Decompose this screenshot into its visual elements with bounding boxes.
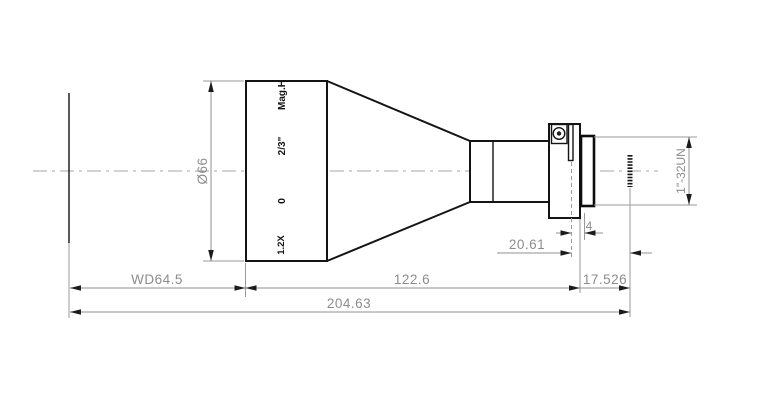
set-screw-socket xyxy=(557,131,561,135)
arrow-thread-top xyxy=(686,137,692,148)
dim-text-front-diameter: Ø66 xyxy=(195,157,210,184)
dim-text-total-length: 204.63 xyxy=(327,296,371,311)
barrel-sensor-format-marking: 2/3" xyxy=(277,136,288,155)
arrow-barrel-left xyxy=(246,285,257,291)
arrow-thread-bottom xyxy=(686,194,692,205)
cone-bottom-edge xyxy=(327,202,470,261)
barrel-focus-index-marking: 0 xyxy=(276,198,288,204)
arrow-rear-left xyxy=(561,250,572,256)
arrow-wd-right xyxy=(235,285,246,291)
dim-text-working-distance: WD64.5 xyxy=(131,272,183,287)
dim-text-rear-section: 20.61 xyxy=(509,237,545,252)
arrow-offset-left xyxy=(561,230,572,236)
rear-tube xyxy=(470,141,549,202)
arrow-total-right xyxy=(619,309,630,315)
drawing-sheet: Ø66 1"-32UN WD64.5 122.6 17.526 204.63 2… xyxy=(0,0,760,415)
barrel-brand-marking: Mag.H xyxy=(277,80,288,110)
dim-text-flange-offset: 4 xyxy=(586,219,593,233)
arrow-diameter-bottom xyxy=(208,250,214,261)
dim-text-barrel-length: 122.6 xyxy=(394,272,430,287)
mount-block xyxy=(549,124,580,218)
dim-text-flange-focal-distance: 17.526 xyxy=(583,272,627,287)
arrow-wd-left xyxy=(70,285,81,291)
lens-technical-drawing: Ø66 1"-32UN WD64.5 122.6 17.526 204.63 2… xyxy=(0,0,760,415)
arrow-diameter-top xyxy=(208,81,214,92)
arrow-total-left xyxy=(70,309,81,315)
arrow-rear-right xyxy=(630,250,641,256)
barrel-magnification-marking: 1.2X xyxy=(276,235,287,255)
arrow-barrel-right xyxy=(569,285,580,291)
c-mount-flange xyxy=(581,136,594,206)
cone-top-edge xyxy=(327,81,470,141)
dim-text-mount-thread: 1"-32UN xyxy=(674,148,688,194)
